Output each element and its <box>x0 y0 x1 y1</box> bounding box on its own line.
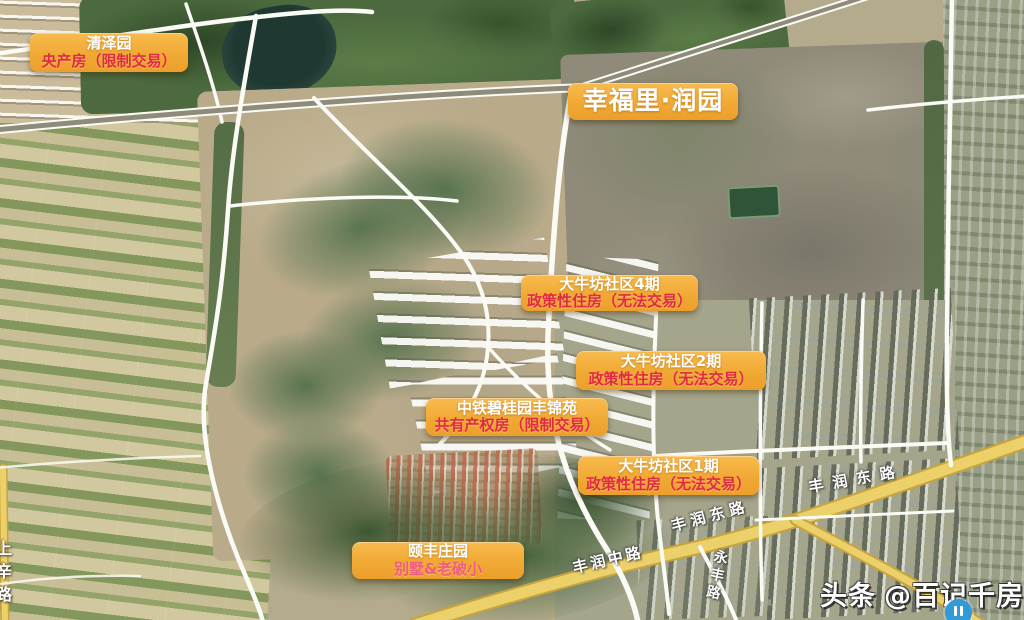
poi-label-qingzeyuan: 清泽园 央产房（限制交易） <box>30 33 188 72</box>
pause-icon <box>954 606 957 616</box>
poi-subtitle: 央产房（限制交易） <box>41 53 176 70</box>
poi-subtitle: 政策性住房（无法交易） <box>588 371 753 388</box>
satellite-map: 丰润东路 丰润东路 丰润中路 永丰路 上辛路 清泽园 央产房（限制交易） 幸福里… <box>0 0 1024 620</box>
poi-title: 大牛坊社区1期 <box>618 458 718 475</box>
poi-subtitle: 共有产权房（限制交易） <box>434 417 599 434</box>
watermark-source: 头条 <box>820 581 876 612</box>
poi-label-daniufang-2: 大牛坊社区2期 政策性住房（无法交易） <box>576 351 766 390</box>
poi-subtitle: 别墅&老破小 <box>394 561 482 578</box>
poi-subtitle: 政策性住房（无法交易） <box>586 476 751 493</box>
pause-icon <box>960 606 963 616</box>
watermark: 头条@百记千房 <box>820 574 1024 613</box>
poi-title: 中铁碧桂园丰锦苑 <box>457 400 577 417</box>
poi-label-daniufang-1: 大牛坊社区1期 政策性住房（无法交易） <box>578 456 759 495</box>
poi-title: 颐丰庄园 <box>408 543 468 560</box>
pause-button[interactable] <box>945 599 972 620</box>
road-label-left-edge-clipped: 上辛路 <box>0 540 14 609</box>
poi-title: 清泽园 <box>86 35 131 52</box>
poi-title: 幸福里·润园 <box>583 87 724 116</box>
poi-title: 大牛坊社区2期 <box>621 353 721 370</box>
poi-label-zhongtie-fengjinyuan: 中铁碧桂园丰锦苑 共有产权房（限制交易） <box>426 398 608 436</box>
poi-label-yifeng-zhuangyuan: 颐丰庄园 别墅&老破小 <box>352 542 524 579</box>
poi-title: 大牛坊社区4期 <box>559 276 659 293</box>
poi-subtitle: 政策性住房（无法交易） <box>527 293 692 310</box>
roads-layer <box>0 0 1024 620</box>
poi-label-daniufang-4: 大牛坊社区4期 政策性住房（无法交易） <box>521 275 698 311</box>
poi-label-xingfuli-runyuan: 幸福里·润园 <box>568 83 738 120</box>
